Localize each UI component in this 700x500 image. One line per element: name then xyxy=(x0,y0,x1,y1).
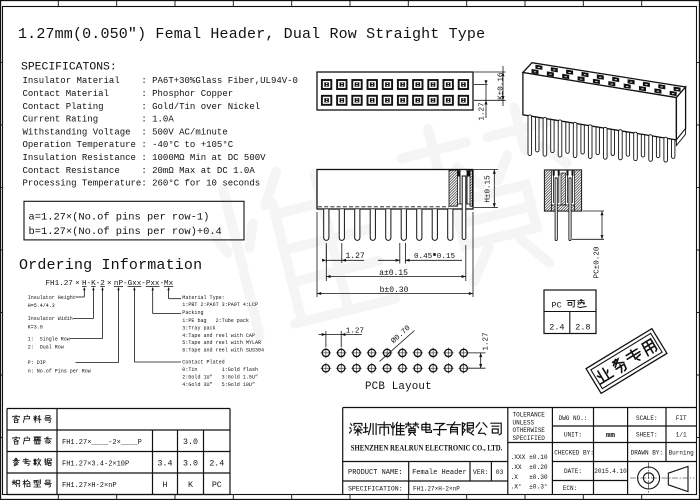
svg-text:PC: PC xyxy=(212,481,222,490)
svg-text:Burning: Burning xyxy=(669,450,695,457)
svg-text:Withstanding Voltage : 500V A: Withstanding Voltage : 500V AC/minute xyxy=(23,127,228,137)
svg-text:Insulator Widih: Insulator Widih xyxy=(28,316,73,322)
svg-text:Ordering Information: Ordering Information xyxy=(19,257,202,274)
svg-text:FH1.27×H-2×nP: FH1.27×H-2×nP xyxy=(62,482,117,490)
svg-text:.XX ±0.20: .XX ±0.20 xyxy=(511,464,548,471)
svg-text:0.15: 0.15 xyxy=(437,253,456,261)
svg-text:H±0.15: H±0.15 xyxy=(484,175,492,203)
svg-text:K: K xyxy=(188,481,193,490)
svg-text:FIT: FIT xyxy=(676,415,687,422)
svg-text:nP: nP xyxy=(114,280,124,288)
svg-text:Operation Temperature : -40°C: Operation Temperature : -40°C to +105°C xyxy=(23,140,234,150)
svg-text:Contact Plated: Contact Plated xyxy=(182,360,224,366)
svg-text:FH1.27×____-2×____P: FH1.27×____-2×____P xyxy=(62,439,142,447)
svg-text:Mx: Mx xyxy=(164,280,174,288)
svg-text:.XXX ±0.10: .XXX ±0.10 xyxy=(511,454,548,461)
svg-text:b±0.30: b±0.30 xyxy=(380,286,409,295)
svg-text:H=5.4/4.3: H=5.4/4.3 xyxy=(28,303,55,309)
svg-text:Current Rating : 1.0A: Current Rating : 1.0A xyxy=(23,115,175,125)
svg-text:1: Single Row: 1: Single Row xyxy=(28,336,70,342)
svg-text:OTHERWISE: OTHERWISE xyxy=(513,427,546,434)
svg-text:FH1.27×H-2×nP: FH1.27×H-2×nP xyxy=(413,486,460,493)
svg-text:.X ±0.30: .X ±0.30 xyxy=(511,474,548,481)
svg-text:UNIT:: UNIT: xyxy=(564,432,582,439)
svg-text:Insulation Resistance : 1000MΩ: Insulation Resistance : 1000MΩ Min at DC… xyxy=(23,153,267,163)
svg-text:0:Tin 1:Gold flash: 0:Tin 1:Gold flash xyxy=(182,367,258,373)
svg-text:DWG NO.:: DWG NO.: xyxy=(559,415,588,422)
svg-text:Material Type:: Material Type: xyxy=(182,295,224,301)
svg-text:Insulator Material : PA6T+3: Insulator Material : PA6T+30%Glass Fiber… xyxy=(23,76,298,86)
svg-text:SHEET:: SHEET: xyxy=(636,432,658,439)
svg-text:2.8: 2.8 xyxy=(575,323,590,333)
svg-text:1:PBT 2:PA6T 3:PA9T 4:LCP: 1:PBT 2:PA6T 3:PA9T 4:LCP xyxy=(182,302,258,308)
svg-text:H: H xyxy=(163,481,168,490)
svg-text:TOLERANCE: TOLERANCE xyxy=(513,412,546,419)
svg-text:a±0.15: a±0.15 xyxy=(379,269,408,278)
svg-text:b=1.27×(No.of pins per row)+0.: b=1.27×(No.of pins per row)+0.4 xyxy=(29,226,222,238)
svg-text:Contact Plating : Gold/T: Contact Plating : Gold/Tin over Nickel xyxy=(23,102,261,112)
svg-text:2: 2 xyxy=(100,280,105,288)
svg-text:1.27: 1.27 xyxy=(346,327,364,335)
svg-text:1.27: 1.27 xyxy=(479,102,487,120)
svg-text:3:Tray pack: 3:Tray pack xyxy=(182,325,215,331)
svg-text:1:PE bag 2:Tube pack: 1:PE bag 2:Tube pack xyxy=(182,318,249,324)
svg-text:PC±0.20: PC±0.20 xyxy=(594,246,602,278)
svg-text:ECN:: ECN: xyxy=(563,485,577,492)
svg-text:3.4: 3.4 xyxy=(158,460,173,469)
svg-text:DATE:: DATE: xyxy=(564,468,582,475)
svg-text:2: Dual Row: 2: Dual Row xyxy=(28,345,64,351)
svg-text:03: 03 xyxy=(496,469,504,476)
svg-text:UNLESS: UNLESS xyxy=(513,419,535,426)
svg-text:VER:: VER: xyxy=(473,469,489,476)
svg-text:Female Header: Female Header xyxy=(412,469,467,477)
svg-text:Contact Resistance : 20mΩ M: Contact Resistance : 20mΩ Max at DC 1.0A xyxy=(23,166,256,176)
svg-text:CHECKED BY:: CHECKED BY: xyxy=(554,450,594,457)
svg-text:Packing: Packing xyxy=(182,310,203,316)
svg-text:SPECIFICATION:: SPECIFICATION: xyxy=(348,486,403,493)
svg-text:PCB Layout: PCB Layout xyxy=(365,381,432,393)
svg-text:1.27: 1.27 xyxy=(482,332,490,350)
svg-text:3.0: 3.0 xyxy=(183,438,198,447)
svg-text:K=3.0: K=3.0 xyxy=(28,324,43,330)
svg-text:mm: mm xyxy=(606,432,616,440)
svg-text:6:Tape and reel with SUS304: 6:Tape and reel with SUS304 xyxy=(182,347,264,353)
svg-text:FH1.27: FH1.27 xyxy=(46,280,73,288)
svg-text:SPECIFIED: SPECIFIED xyxy=(513,435,546,442)
svg-text:1/1: 1/1 xyxy=(676,432,687,439)
svg-text:FH1.27×3.4-2×10P: FH1.27×3.4-2×10P xyxy=(62,461,129,469)
svg-text:2.4: 2.4 xyxy=(549,323,564,333)
svg-text:1.27mm(0.050″) Femal Header, D: 1.27mm(0.050″) Femal Header, Dual Row St… xyxy=(18,26,485,43)
svg-text:Insulator Height: Insulator Height xyxy=(28,295,76,301)
svg-text:SCALE:: SCALE: xyxy=(636,415,658,422)
svg-text:K±0.16: K±0.16 xyxy=(497,72,505,100)
svg-text:Gxx: Gxx xyxy=(128,280,142,288)
svg-text:SPECIFICATONS:: SPECIFICATONS: xyxy=(21,62,117,74)
svg-text:3.0: 3.0 xyxy=(183,460,198,469)
svg-text:Pxx: Pxx xyxy=(146,280,160,288)
svg-text:a=1.27×(No.of pins per row-1): a=1.27×(No.of pins per row-1) xyxy=(29,212,210,224)
svg-text:P: DIP: P: DIP xyxy=(28,360,46,366)
svg-text:n: No.of Pins per Row: n: No.of Pins per Row xyxy=(28,368,91,374)
svg-text:PRODUCT NAME:: PRODUCT NAME: xyxy=(348,469,403,477)
svg-text:PC: PC xyxy=(552,300,562,310)
svg-text:×: × xyxy=(75,280,80,288)
svg-text:0.45: 0.45 xyxy=(414,253,433,261)
svg-text:Contact Material : Phosph: Contact Material : Phosphor Copper xyxy=(23,89,234,99)
svg-text:.X° ±0.3°: .X° ±0.3° xyxy=(511,484,548,491)
svg-text:2:Gold 1U″ 3:Gold 1.5U″: 2:Gold 1U″ 3:Gold 1.5U″ xyxy=(182,374,258,380)
svg-text:5:Tape and reel with MYLAR: 5:Tape and reel with MYLAR xyxy=(182,340,261,346)
svg-text:DRAWN BY:: DRAWN BY: xyxy=(631,450,663,457)
svg-text:Processing Temperature: 260°C: Processing Temperature: 260°C for 10 sec… xyxy=(23,179,261,189)
svg-text:2015.4.10: 2015.4.10 xyxy=(594,468,627,475)
svg-text:1.27: 1.27 xyxy=(346,252,365,261)
svg-text:4:Gold 3U″ 5:Gold 10U″: 4:Gold 3U″ 5:Gold 10U″ xyxy=(182,382,255,388)
svg-text:4:Tape and reel with CAP: 4:Tape and reel with CAP xyxy=(182,333,255,339)
svg-text:SHENZHEN REALRUN ELECTRONIC CO: SHENZHEN REALRUN ELECTRONIC CO., LTD. xyxy=(351,444,503,453)
svg-text:×: × xyxy=(107,280,112,288)
svg-text:2.4: 2.4 xyxy=(209,460,224,469)
